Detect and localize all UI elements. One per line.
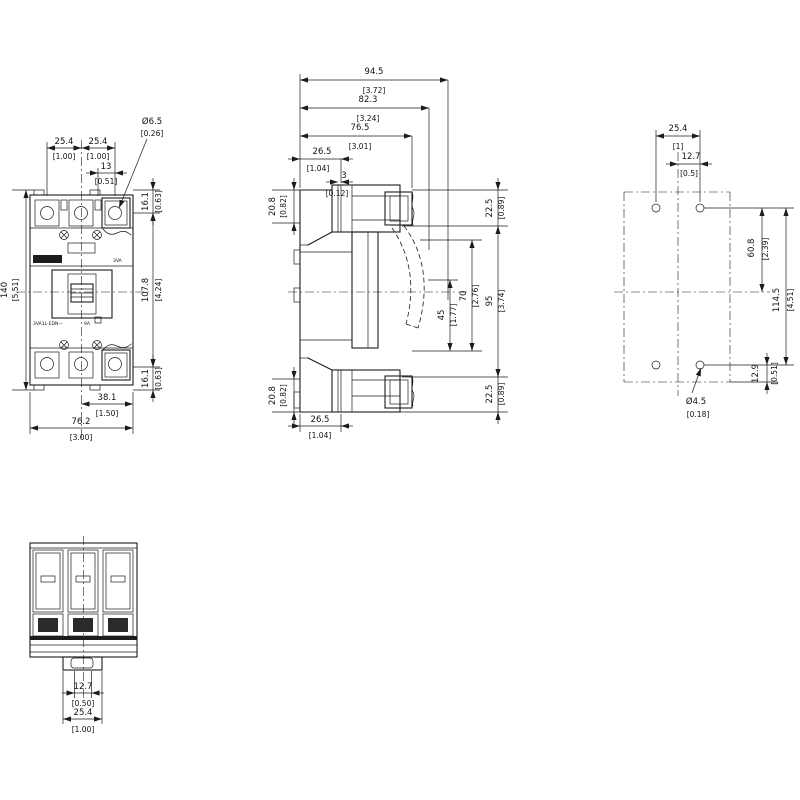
- brand-label: 3VA: [113, 258, 123, 264]
- dim-front-terminal-bottom-mm: 16.1: [141, 369, 151, 388]
- dim-side-front-step-in: [1.04]: [307, 164, 330, 173]
- dim-bottom-tab-width-in: [0.50]: [72, 699, 95, 708]
- dim-front-total-width-mm: 76.2: [72, 417, 91, 427]
- front-view: 3VA 3VA1L-EDN— 9A: [0, 116, 163, 442]
- dim-front-total-height-in: [5.51]: [11, 279, 20, 302]
- dim-drill-half-pitch-mm: 12.7: [682, 152, 701, 162]
- break-line-bottom: [103, 344, 131, 350]
- dim-side-front-span-mm: 95: [485, 296, 495, 307]
- dim-side-clearance-70-in: [2.76]: [471, 285, 480, 308]
- dim-front-hole-dia-in: [0.26]: [141, 129, 164, 138]
- dim-front-cover-height: 107.8 [4.24]: [133, 213, 163, 367]
- dim-side-front-span-in: [3.74]: [497, 290, 506, 313]
- dim-front-pitch-left-in: [1.00]: [53, 152, 76, 161]
- dim-side-clearance-70-mm: 70: [459, 291, 469, 302]
- dim-drill-upper-span-mm: 60.8: [747, 239, 757, 258]
- dim-side-clearance-45-in: [1.77]: [449, 304, 458, 327]
- dimension-drawing-svg: 3VA 3VA1L-EDN— 9A: [0, 0, 800, 800]
- mounting-hole-top-left: [652, 204, 660, 212]
- dim-side-clearance-45-mm: 45: [437, 310, 447, 321]
- type-label-black: [33, 255, 62, 263]
- side-escutcheon: [352, 232, 378, 348]
- dim-side-depth-terminal-mm: 82.3: [359, 95, 378, 105]
- dim-drill-hole-pitch-in: [1]: [673, 142, 684, 151]
- terminal-screw-top-right: [109, 207, 122, 220]
- dim-side-back-bottom-offset: 20.8 [0.82]: [268, 367, 300, 424]
- dim-front-hole-offset-mm: 13: [101, 162, 112, 172]
- dim-front-half-width-mm: 38.1: [98, 393, 117, 403]
- dim-drill-row-span-in: [4.51]: [786, 289, 795, 312]
- dim-drill-hole-dia-in: [0.18]: [687, 410, 710, 419]
- dim-front-cover-height-in: [4.24]: [154, 279, 163, 302]
- mounting-hole-bottom-right: [696, 361, 704, 369]
- mounting-hole-bottom-left: [652, 361, 660, 369]
- dim-drill-row-span: 114.5 [4.51]: [704, 208, 795, 365]
- dim-front-hole-offset: 13 [0.51]: [86, 162, 127, 196]
- dim-front-pitch-right-mm: 25.4: [89, 137, 108, 147]
- mounting-hole-top-right: [696, 204, 704, 212]
- dim-side-back-top-offset: 20.8 [0.82]: [268, 178, 300, 235]
- dim-front-total-width-in: [3.00]: [70, 433, 93, 442]
- dim-front-terminal-top: 16.1 [0.63]: [133, 178, 163, 225]
- dim-drill-bottom-offset: 12.9 [0.51]: [730, 353, 779, 394]
- cover-screw-right: [93, 231, 102, 240]
- dim-side-back-top-offset-mm: 20.8: [268, 197, 278, 216]
- dim-drill-row-span-mm: 114.5: [772, 288, 782, 312]
- dim-front-cover-height-mm: 107.8: [141, 278, 151, 302]
- terminal-screw-top-left: [41, 207, 54, 220]
- bottom-view: 12.7 [0.50] 25.4 [1.00]: [30, 536, 137, 734]
- terminal-screw-top-center: [75, 207, 88, 220]
- din-foot-tab: [71, 658, 93, 668]
- terminal-screw-bottom-right: [109, 358, 122, 371]
- dim-side-depth-terminal-in: [3.24]: [357, 114, 380, 123]
- dim-drill-half-pitch: 12.7 [0.5]: [666, 152, 712, 178]
- side-foot: [294, 392, 300, 408]
- rating-text: 9A: [84, 321, 91, 327]
- terminal-screw-bottom-left: [41, 358, 54, 371]
- dim-front-terminal-bottom: 16.1 [0.63]: [133, 355, 163, 402]
- dim-front-hole-offset-in: [0.51]: [95, 177, 118, 186]
- callout-drill-hole-dia: Ø4.5 [0.18]: [686, 368, 709, 419]
- dim-bottom-tab-width: 12.7 [0.50]: [62, 671, 104, 708]
- dim-drill-bottom-offset-mm: 12.9: [751, 364, 761, 383]
- dim-side-front-bottom-offset-in: [0.89]: [497, 383, 506, 406]
- dim-side-depth-body-in: [3.01]: [349, 142, 372, 151]
- dim-drill-upper-span: 60.8 [2.39]: [704, 208, 794, 292]
- dim-front-terminal-bottom-in: [0.63]: [154, 367, 163, 390]
- panel-outline: [614, 152, 770, 396]
- dim-side-front-bottom-offset-mm: 22.5: [485, 385, 495, 404]
- side-view-body: [294, 185, 424, 412]
- dim-side-front-step-mm: 26.5: [313, 147, 332, 157]
- dim-bottom-foot-width-in: [1.00]: [72, 725, 95, 734]
- toggle-handle: [71, 284, 93, 302]
- dim-side-handle-step-mm: 3: [341, 171, 346, 181]
- dim-side-front-top-offset: 22.5 [0.89]: [402, 178, 508, 226]
- dim-drill-half-pitch-in: [0.5]: [680, 169, 698, 178]
- handle-escutcheon: [52, 270, 112, 318]
- side-view: 94.5 [3.72] 82.3 [3.24] 76.5 [3.01] 26.5…: [268, 67, 508, 440]
- dim-side-clearance-70: 70 [2.76]: [412, 240, 482, 351]
- break-line-top: [103, 229, 131, 235]
- dim-drill-hole-dia-mm: Ø4.5: [686, 396, 706, 407]
- dim-side-front-bottom-offset: 22.5 [0.89]: [400, 377, 508, 424]
- dim-front-terminal-top-mm: 16.1: [141, 192, 151, 211]
- dim-side-base-depth-in: [1.04]: [309, 431, 332, 440]
- dim-drill-bottom-offset-in: [0.51]: [770, 362, 779, 385]
- dim-front-terminal-top-in: [0.63]: [154, 190, 163, 213]
- dim-side-depth-body-mm: 76.5: [351, 123, 370, 133]
- dim-side-front-top-offset-in: [0.89]: [497, 197, 506, 220]
- cover-screw-left: [60, 231, 69, 240]
- dim-side-clearance-45: 45 [1.77]: [428, 280, 458, 351]
- dim-front-pitch-right-in: [1.00]: [87, 152, 110, 161]
- dim-front-total-height-mm: 140: [0, 282, 10, 298]
- dim-side-base-depth-mm: 26.5: [311, 415, 330, 425]
- dim-side-front-span: 95 [3.74]: [402, 226, 508, 377]
- dim-side-depth-total-mm: 94.5: [365, 67, 384, 77]
- terminal-screw-bottom-center: [75, 358, 88, 371]
- drilling-plan: 25.4 [1] 12.7 [0.5] 60.8 [2.39] 114.5 [4…: [614, 124, 795, 419]
- cable-curve-inner: [392, 228, 411, 324]
- din-clip-lower: [294, 288, 300, 302]
- dim-bottom-tab-width-mm: 12.7: [74, 682, 93, 692]
- dim-side-back-bottom-offset-mm: 20.8: [268, 386, 278, 405]
- dim-side-depth-total-in: [3.72]: [363, 86, 386, 95]
- dim-drill-hole-pitch-mm: 25.4: [669, 124, 688, 134]
- dim-drill-upper-span-in: [2.39]: [761, 238, 770, 261]
- technical-drawing: 3VA 3VA1L-EDN— 9A: [0, 0, 800, 800]
- dim-side-back-bottom-offset-in: [0.82]: [279, 384, 288, 407]
- dim-side-handle-step-in: [0.12]: [326, 189, 349, 198]
- dim-front-hole-dia-mm: Ø6.5: [142, 116, 162, 127]
- dim-side-base-depth: 26.5 [1.04]: [288, 414, 353, 440]
- dim-side-back-top-offset-in: [0.82]: [279, 195, 288, 218]
- dim-front-total-height: 140 [5.51]: [0, 190, 34, 390]
- dim-front-pitch-left-mm: 25.4: [55, 137, 74, 147]
- dim-side-front-top-offset-mm: 22.5: [485, 199, 495, 218]
- dim-bottom-foot-width-mm: 25.4: [74, 708, 93, 718]
- type-line-text: 3VA1L-EDN—: [33, 321, 63, 327]
- dim-front-pitch-right: 25.4 [1.00]: [82, 137, 116, 161]
- dim-front-half-width-in: [1.50]: [96, 409, 119, 418]
- din-clip-upper: [294, 250, 300, 264]
- cable-curve-outer: [404, 226, 424, 328]
